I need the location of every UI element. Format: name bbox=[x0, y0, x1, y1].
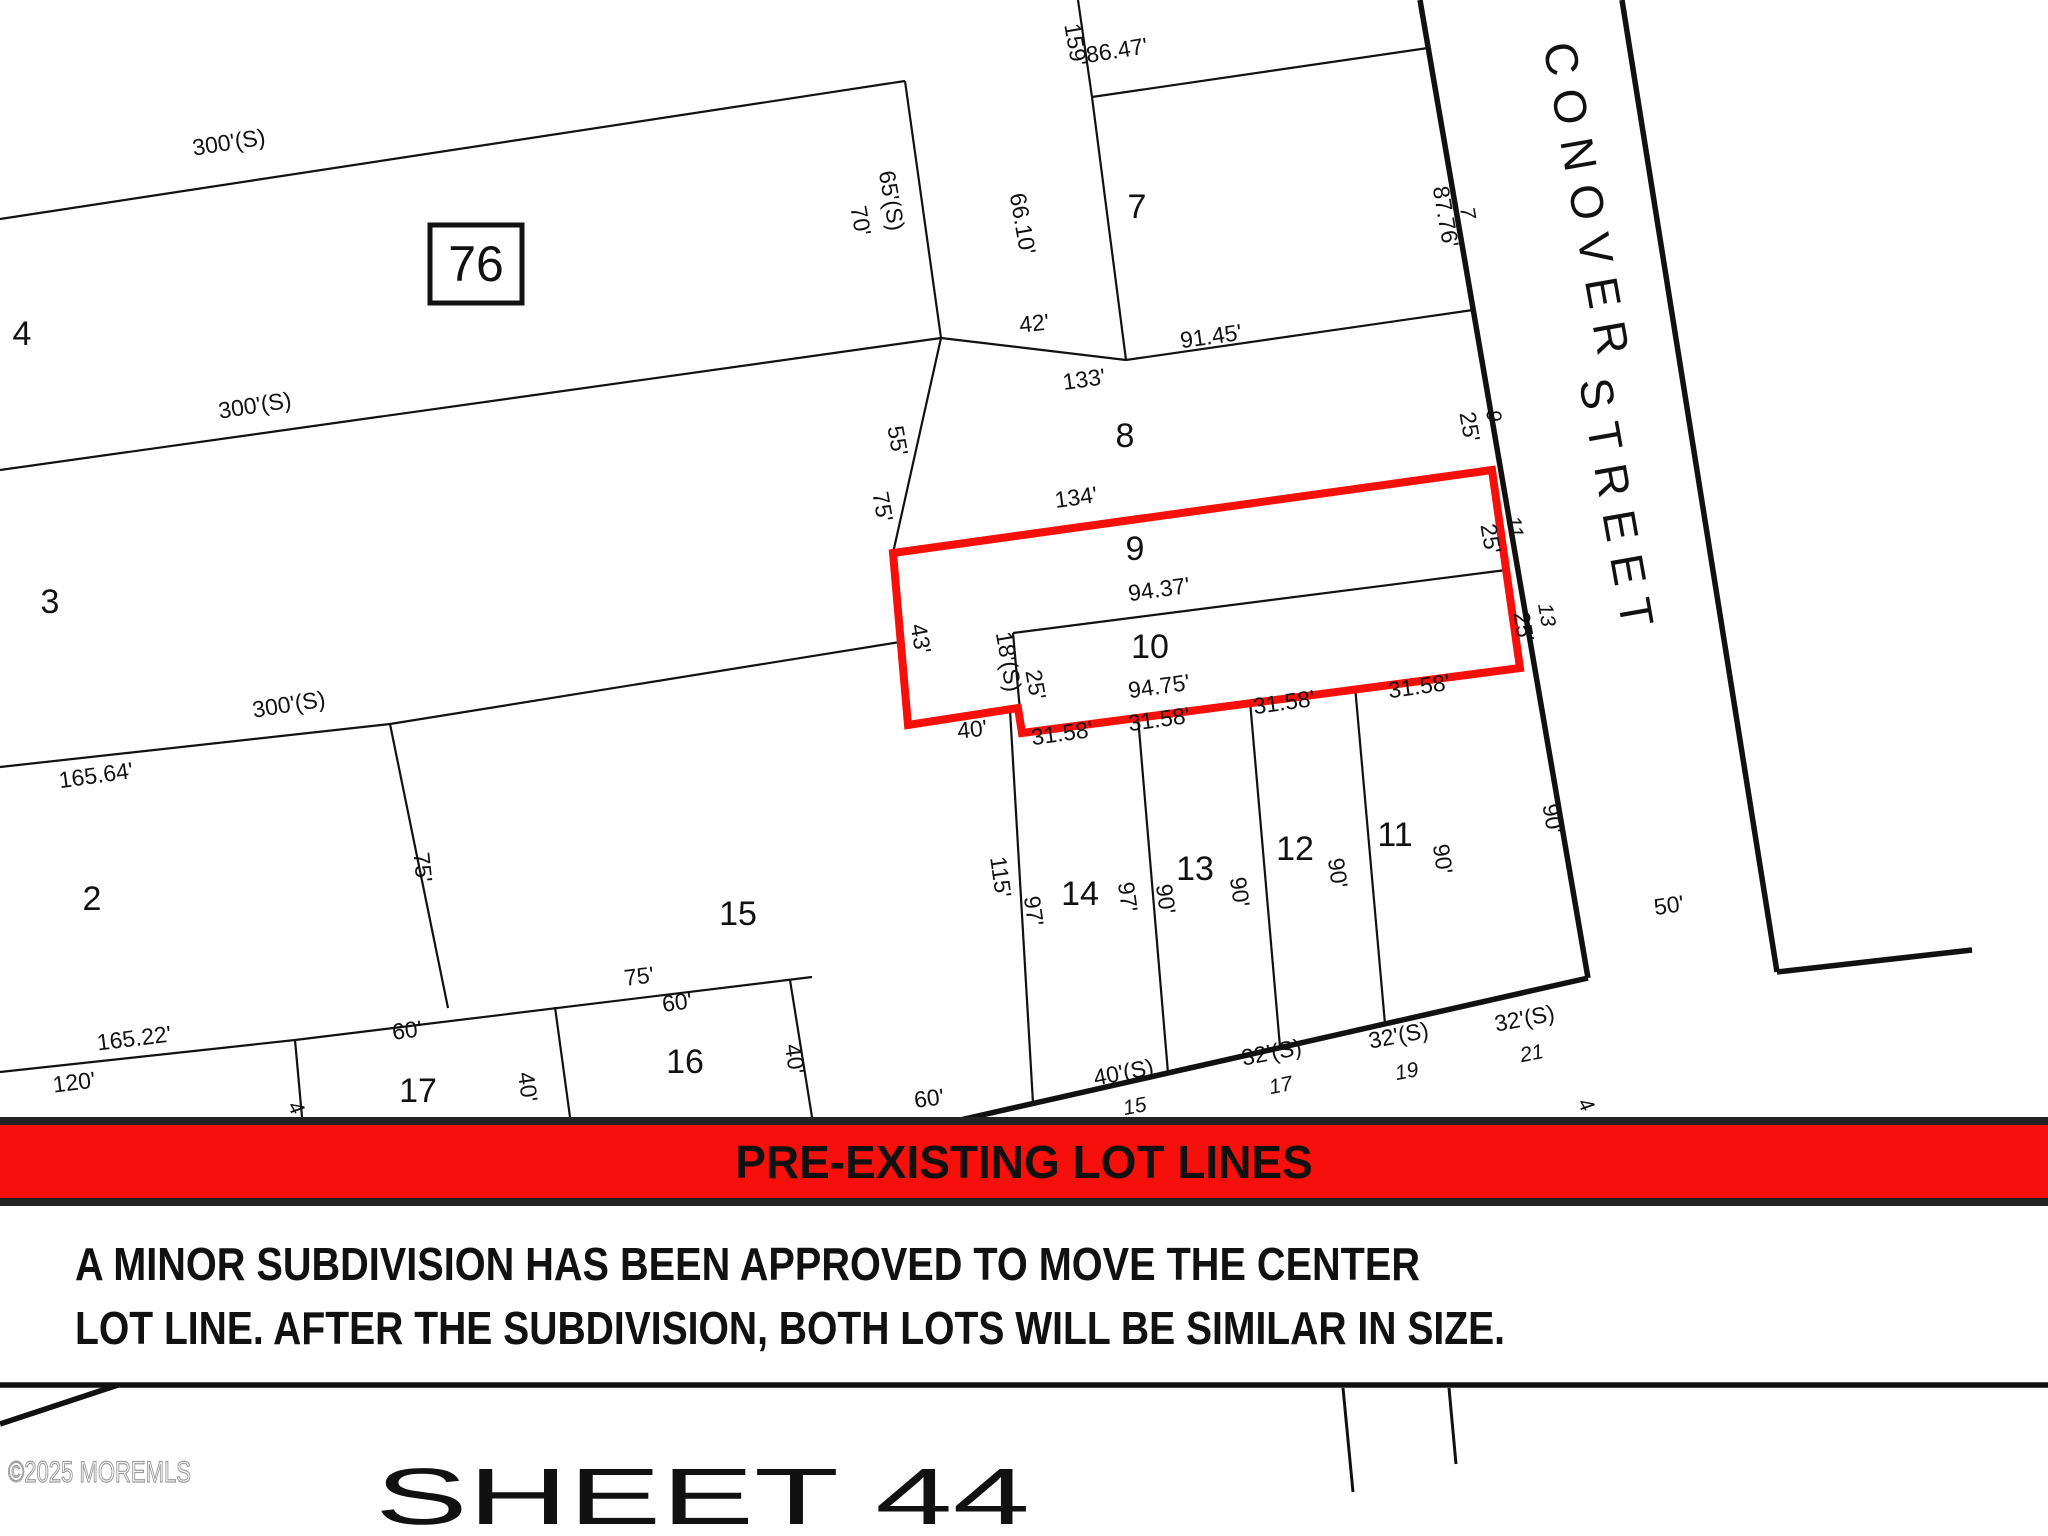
street-lines bbox=[960, 0, 1972, 1120]
lot-number-15: 15 bbox=[719, 895, 757, 933]
lot4-bottom-line bbox=[0, 338, 941, 470]
note-line-2: LOT LINE. AFTER THE SUBDIVISION, BOTH LO… bbox=[75, 1302, 1505, 1354]
dimension-66.10: 66.10' bbox=[1005, 191, 1041, 257]
street-corner-line bbox=[1777, 950, 1972, 972]
lot4-right-line bbox=[905, 81, 941, 338]
dimension-25: 25' bbox=[1454, 410, 1485, 444]
street-number-13: 13 bbox=[1533, 601, 1560, 628]
dimension-97: 97' bbox=[1019, 894, 1049, 927]
bottom-tick-1 bbox=[1343, 1388, 1353, 1492]
bottom-tick-2 bbox=[1449, 1388, 1456, 1464]
plat-map-page: 76 CONOVER STREET 300'(S)300'(S)300'(S)1… bbox=[0, 0, 2048, 1536]
dimension-55: 55' bbox=[882, 424, 913, 458]
dimension-25: 25' bbox=[1508, 610, 1539, 644]
dimension-75: 75' bbox=[867, 490, 898, 524]
lot13-lot12-divider bbox=[1250, 701, 1280, 1047]
dimension-40: 40' bbox=[956, 715, 989, 744]
street-name-street: STREET bbox=[1569, 374, 1666, 644]
lot-number-17: 17 bbox=[399, 1072, 437, 1110]
lot-number-3: 3 bbox=[41, 583, 60, 621]
dimension-25: 25' bbox=[1475, 522, 1506, 556]
dimension-60: 60' bbox=[391, 1015, 424, 1044]
lot9-lot10-divider bbox=[1013, 570, 1506, 633]
dimension-42: 42' bbox=[1018, 309, 1051, 338]
street-number-7: 7 bbox=[1455, 205, 1480, 222]
dimension-134: 134' bbox=[1053, 481, 1099, 513]
lot16-left-line bbox=[555, 1007, 570, 1117]
lot-number-7: 7 bbox=[1128, 188, 1147, 226]
conover-street-right-edge bbox=[1622, 0, 1777, 972]
dimension-120: 120' bbox=[51, 1067, 97, 1098]
dimension-90: 90' bbox=[1428, 842, 1458, 875]
lot-number-8: 8 bbox=[1116, 417, 1135, 455]
dimension-40S: 40'(S) bbox=[1091, 1054, 1155, 1091]
lot4-top-line bbox=[0, 81, 905, 219]
street-number-17: 17 bbox=[1267, 1072, 1296, 1099]
dimension-90: 90' bbox=[1323, 856, 1353, 889]
dimension-32S: 32'(S) bbox=[1492, 1000, 1556, 1037]
dimension-165.64: 165.64' bbox=[57, 757, 135, 793]
dimension-97: 97' bbox=[1113, 880, 1143, 913]
lot8-top-line bbox=[1126, 310, 1473, 360]
dimension-70: 70' bbox=[845, 204, 876, 238]
dimension-94.75: 94.75' bbox=[1126, 669, 1191, 703]
dimension-43: 43' bbox=[905, 622, 936, 656]
dimension-32S: 32'(S) bbox=[1366, 1017, 1430, 1054]
dimension-40: 40' bbox=[513, 1070, 543, 1103]
dimension-300S: 300'(S) bbox=[190, 124, 267, 161]
dimension-31.58: 31.58' bbox=[1251, 685, 1316, 719]
bottom-left-diagonal-line bbox=[0, 1385, 118, 1424]
dimension-90: 90' bbox=[1225, 875, 1255, 908]
dimension-50: 50' bbox=[1652, 890, 1685, 920]
dimension-300S: 300'(S) bbox=[250, 686, 327, 723]
dimension-32S: 32'(S) bbox=[1239, 1034, 1303, 1071]
dimension-65S: 65'(S) bbox=[874, 168, 910, 232]
dimension-60: 60' bbox=[661, 987, 694, 1016]
lot-number-2: 2 bbox=[83, 880, 102, 918]
street-number-9: 9 bbox=[1481, 408, 1506, 424]
banner-title: PRE-EXISTING LOT LINES bbox=[735, 1136, 1313, 1188]
lot-number-11: 11 bbox=[1377, 816, 1412, 854]
lot-number-9: 9 bbox=[1126, 530, 1145, 568]
lot-number-4: 4 bbox=[13, 315, 32, 353]
dimension-90: 90' bbox=[1537, 802, 1568, 836]
lot-number-10: 10 bbox=[1131, 628, 1169, 666]
dimension-18S: 18'(S) bbox=[991, 629, 1027, 693]
lot-number-12: 12 bbox=[1276, 830, 1314, 868]
dimension-115: 115' bbox=[985, 855, 1016, 899]
street-name-conover: CONOVER bbox=[1533, 38, 1642, 373]
plat-map-canvas: 76 CONOVER STREET 300'(S)300'(S)300'(S)1… bbox=[0, 0, 2048, 1536]
street-number-4: 4 bbox=[1573, 1094, 1599, 1116]
dimension-60: 60' bbox=[913, 1083, 946, 1112]
dimension-75: 75' bbox=[408, 851, 437, 884]
dimension-labels: 300'(S)300'(S)300'(S)165.64'165.22'120'6… bbox=[51, 21, 1685, 1112]
note-line-1: A MINOR SUBDIVISION HAS BEEN APPROVED TO… bbox=[75, 1238, 1420, 1290]
dimension-133: 133' bbox=[1061, 363, 1107, 395]
dimension-165.22: 165.22' bbox=[95, 1021, 172, 1056]
dimension-25: 25' bbox=[1020, 668, 1051, 702]
dimension-86.47: 86.47' bbox=[1084, 32, 1149, 67]
dimension-94.37: 94.37' bbox=[1126, 572, 1191, 606]
lot3-bottom-line bbox=[0, 724, 390, 767]
lot-number-16: 16 bbox=[666, 1043, 704, 1081]
dimension-75: 75' bbox=[623, 961, 656, 990]
banner: PRE-EXISTING LOT LINES bbox=[0, 1117, 2048, 1206]
dimension-31.58: 31.58' bbox=[1126, 702, 1191, 736]
dimension-300S: 300'(S) bbox=[216, 387, 293, 424]
street-number-11: 11 bbox=[1501, 514, 1527, 539]
lot-number-14: 14 bbox=[1061, 875, 1099, 913]
dimension-40: 40' bbox=[780, 1042, 810, 1075]
lot16-lot17-top-line bbox=[295, 977, 812, 1040]
lot-number-13: 13 bbox=[1176, 850, 1214, 888]
street-number-19: 19 bbox=[1393, 1058, 1421, 1085]
block-number: 76 bbox=[448, 236, 504, 292]
street-number-15: 15 bbox=[1121, 1093, 1149, 1120]
lot12-lot11-divider bbox=[1355, 686, 1385, 1024]
watermark: ©2025 MOREMLS bbox=[8, 1456, 191, 1489]
lot42ft-line bbox=[941, 338, 1126, 360]
street-number-4: 4 bbox=[283, 1097, 309, 1119]
street-number-21: 21 bbox=[1517, 1040, 1545, 1067]
dimension-31.58: 31.58' bbox=[1029, 716, 1094, 750]
lot15-top-line bbox=[390, 642, 900, 724]
lot-lines bbox=[0, 0, 1506, 1117]
dimension-91.45: 91.45' bbox=[1178, 319, 1243, 353]
dimension-31.58: 31.58' bbox=[1386, 669, 1451, 703]
sheet-label: SHEET 44 bbox=[375, 1452, 1030, 1536]
